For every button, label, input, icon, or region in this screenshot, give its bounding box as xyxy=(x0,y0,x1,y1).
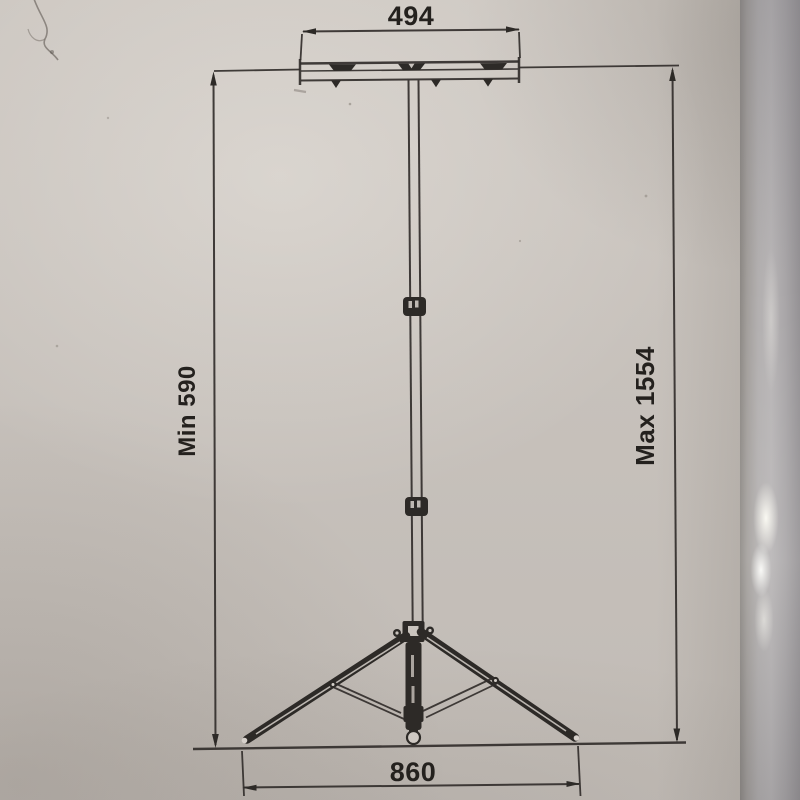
dim-max-height: Max 1554 xyxy=(630,67,680,743)
witness-line-left xyxy=(301,34,303,60)
pivot-hole xyxy=(428,629,431,632)
left-foot-hole xyxy=(242,738,248,744)
ground-line xyxy=(193,743,686,750)
left-leg-highlight xyxy=(256,642,400,734)
dim-base-width: 860 xyxy=(242,746,581,796)
clamp-slit xyxy=(411,501,415,508)
column-slot xyxy=(411,655,414,677)
column-foot xyxy=(407,731,420,744)
dim-line xyxy=(673,70,678,740)
right-brace-line xyxy=(423,678,494,712)
arrow-up-icon xyxy=(669,67,676,81)
pivot-hole xyxy=(395,631,398,634)
dimension-label-base-width: 860 xyxy=(390,757,437,787)
paper-speck xyxy=(56,345,59,348)
pole-clamp-upper xyxy=(403,297,426,316)
extension-line-top-right xyxy=(519,66,679,68)
center-column xyxy=(404,642,424,744)
pole-right-edge xyxy=(419,80,423,626)
paper-speck xyxy=(519,240,521,242)
dimension-label-max-height: Max 1554 xyxy=(630,346,660,466)
bolt-hole xyxy=(332,683,335,686)
dim-top-width: 494 xyxy=(301,1,521,60)
hook-right-icon xyxy=(483,79,493,87)
clamp-slit xyxy=(409,301,413,308)
tripod-drawing xyxy=(193,57,686,749)
arrow-right-icon xyxy=(567,781,581,787)
hook-center-icon xyxy=(431,80,441,88)
scratch-knot xyxy=(50,50,54,54)
left-brace-line xyxy=(331,682,401,714)
arrow-down-icon xyxy=(673,729,680,743)
clamp-slit xyxy=(415,301,419,308)
photo-background: 494 Min 590 Max 1554 xyxy=(0,0,800,800)
paper-speck xyxy=(349,103,352,106)
right-brace-line xyxy=(426,684,497,718)
left-brace-line xyxy=(334,688,404,720)
arrow-down-icon xyxy=(212,734,219,748)
clamp-slit xyxy=(417,501,421,508)
right-foot-hole xyxy=(574,735,580,741)
center-pole xyxy=(403,80,428,626)
pole-left-edge xyxy=(409,81,413,627)
hook-left-icon xyxy=(331,80,341,88)
arrow-up-icon xyxy=(210,72,217,86)
pole-clamp-lower xyxy=(405,497,428,516)
bolt-hole xyxy=(494,679,497,682)
photo-artifacts xyxy=(28,0,647,690)
brace-collar xyxy=(404,706,424,722)
paper-speck-dash xyxy=(294,90,306,92)
arrow-left-icon xyxy=(302,28,316,34)
tripod-dimension-drawing: 494 Min 590 Max 1554 xyxy=(0,0,800,800)
extension-line-top-left xyxy=(214,70,300,72)
column-slot xyxy=(412,686,415,703)
extension-line-right xyxy=(578,746,581,796)
dimension-label-top-width: 494 xyxy=(388,1,435,31)
witness-line-right xyxy=(519,32,520,58)
paper-speck xyxy=(645,195,648,198)
dim-line xyxy=(214,75,216,745)
scratch-mark-2 xyxy=(28,29,45,41)
extension-line-left xyxy=(242,751,244,796)
scratch-mark xyxy=(33,0,58,60)
dim-min-height: Min 590 xyxy=(174,72,219,749)
dimension-label-min-height: Min 590 xyxy=(174,365,201,457)
paper-speck xyxy=(107,117,109,119)
arrow-right-icon xyxy=(506,26,520,32)
